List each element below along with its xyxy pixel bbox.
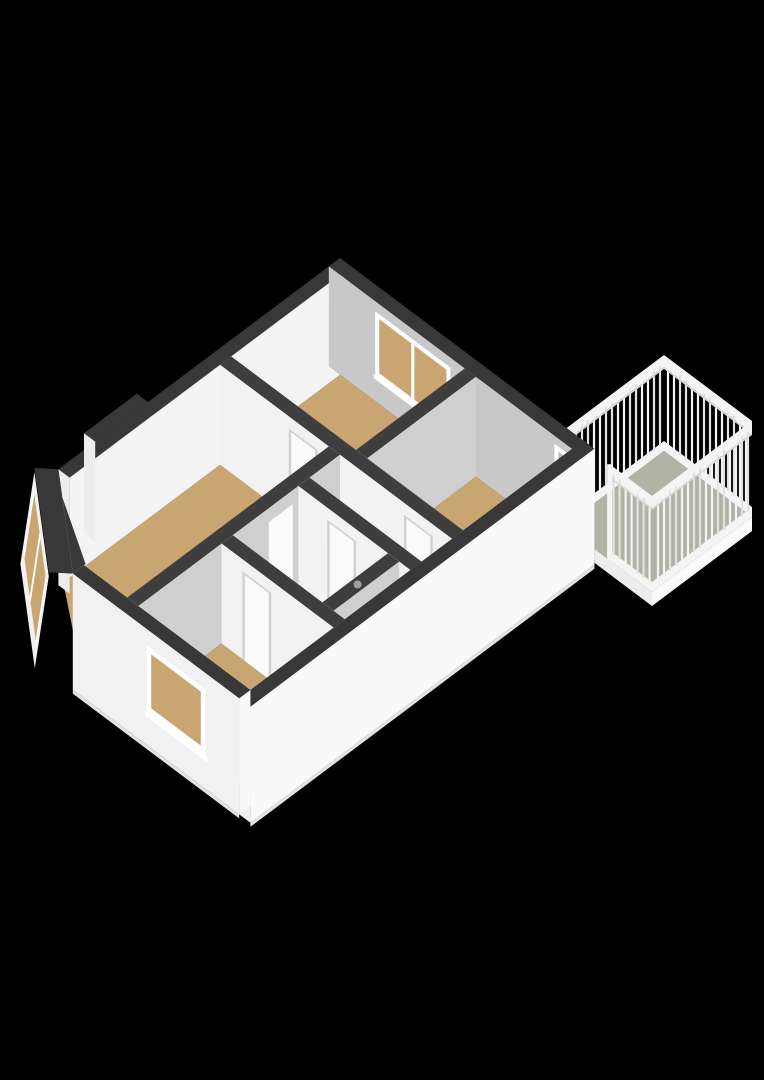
railing-baluster (599, 411, 601, 491)
floorplan-3d-canvas[interactable] (0, 0, 764, 1080)
door-opening (245, 575, 269, 679)
railing-baluster (643, 498, 645, 578)
railing-baluster (733, 416, 735, 496)
railing-baluster (605, 407, 607, 487)
railing-baluster (697, 389, 699, 469)
railing-baluster (705, 464, 707, 544)
railing-baluster (717, 455, 719, 535)
railing-top-bar (664, 355, 752, 433)
chimney-recess-face (84, 433, 95, 541)
railing-baluster (681, 482, 683, 562)
railing-baluster (729, 446, 731, 526)
railing-baluster (657, 500, 659, 580)
railing-edge (664, 367, 752, 435)
railing-baluster (649, 502, 651, 582)
railing-baluster (663, 495, 665, 575)
railing-baluster (635, 384, 637, 464)
railing-baluster (647, 375, 649, 455)
railing-baluster (637, 493, 639, 573)
railing-baluster (741, 437, 743, 517)
railing-baluster (747, 432, 749, 512)
railing-baluster (675, 486, 677, 566)
railing-baluster (687, 477, 689, 557)
wall-outer-face-sw-end (239, 690, 250, 814)
railing-baluster (629, 389, 631, 469)
railing-baluster (711, 459, 713, 539)
railing-baluster (667, 366, 669, 446)
railing-baluster (679, 375, 681, 455)
railing-baluster (693, 473, 695, 553)
railing-baluster (691, 384, 693, 464)
railing-baluster (613, 475, 615, 555)
railing-baluster (699, 468, 701, 548)
floorplan-viewer (0, 0, 764, 1080)
railing-baluster (623, 393, 625, 473)
railing-baluster (631, 489, 633, 569)
railing-baluster (669, 491, 671, 571)
railing-baluster (653, 371, 655, 451)
railing-baluster (641, 380, 643, 460)
railing-gap-post (607, 464, 612, 560)
railing-baluster (659, 366, 661, 446)
railing-baluster (625, 484, 627, 564)
railing-baluster (619, 480, 621, 560)
railing-baluster (715, 402, 717, 482)
railing-baluster (723, 450, 725, 530)
railing-baluster (617, 398, 619, 478)
railing-baluster (735, 441, 737, 521)
railing-baluster (685, 380, 687, 460)
railing-baluster (673, 371, 675, 451)
door-knob (354, 580, 362, 588)
